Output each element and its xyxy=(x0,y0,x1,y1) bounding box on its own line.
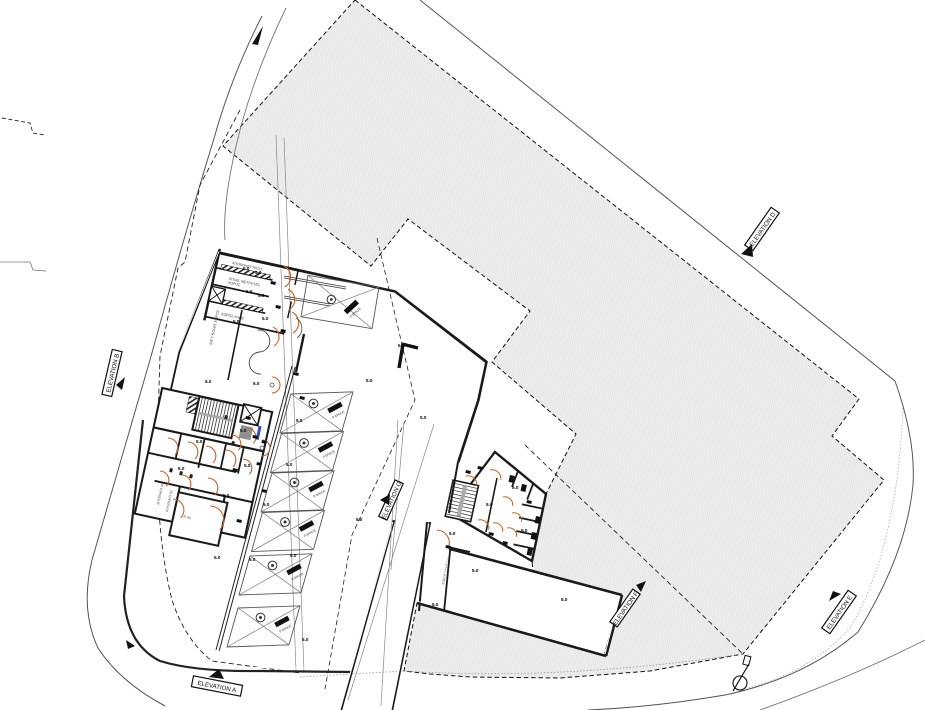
svg-text:5.0: 5.0 xyxy=(420,415,427,420)
svg-text:5.0: 5.0 xyxy=(178,466,185,471)
svg-text:5.0: 5.0 xyxy=(449,531,456,536)
svg-text:5.0: 5.0 xyxy=(262,316,269,321)
svg-text:5.0: 5.0 xyxy=(512,485,519,490)
svg-text:5.0: 5.0 xyxy=(356,517,363,522)
svg-text:5.0: 5.0 xyxy=(263,502,270,507)
svg-text:5.0: 5.0 xyxy=(196,439,203,444)
svg-text:5.0: 5.0 xyxy=(240,428,247,433)
svg-text:5.0: 5.0 xyxy=(432,602,439,607)
svg-text:5.0: 5.0 xyxy=(233,319,240,324)
svg-text:5.0: 5.0 xyxy=(472,568,479,573)
svg-text:5.0: 5.0 xyxy=(521,528,528,533)
svg-text:5.0: 5.0 xyxy=(398,343,405,348)
svg-text:5.0: 5.0 xyxy=(244,463,251,468)
svg-text:5.0: 5.0 xyxy=(249,557,256,562)
svg-text:5.0: 5.0 xyxy=(223,493,230,498)
svg-text:5.0: 5.0 xyxy=(290,553,297,558)
svg-text:5.0: 5.0 xyxy=(246,289,253,294)
svg-text:5.0: 5.0 xyxy=(258,293,265,298)
svg-text:5.0: 5.0 xyxy=(561,597,568,602)
svg-text:5.0: 5.0 xyxy=(486,502,493,507)
svg-text:5.0: 5.0 xyxy=(255,270,262,275)
svg-text:5.0: 5.0 xyxy=(253,381,260,386)
svg-text:5.0: 5.0 xyxy=(302,637,309,642)
svg-text:5.0: 5.0 xyxy=(214,555,221,560)
svg-text:5.0: 5.0 xyxy=(286,462,293,467)
svg-text:5.0: 5.0 xyxy=(243,266,250,271)
svg-text:5.0: 5.0 xyxy=(205,379,212,384)
svg-text:5.0: 5.0 xyxy=(296,418,303,423)
svg-text:5.0: 5.0 xyxy=(366,378,373,383)
